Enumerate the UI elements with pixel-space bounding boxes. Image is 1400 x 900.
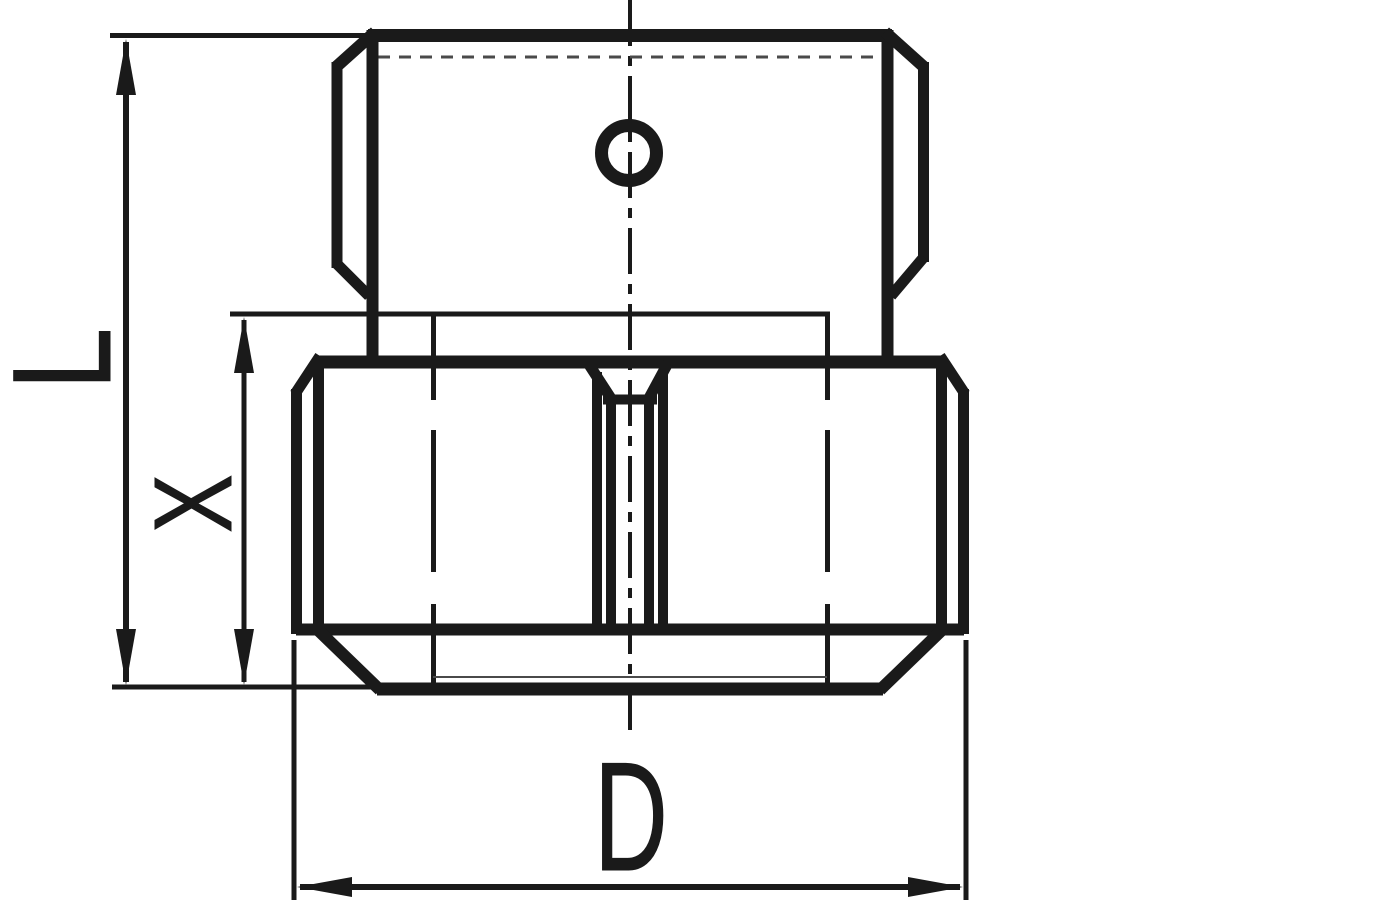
technical-drawing: L X D <box>0 0 1400 900</box>
dimension-L-arrow-up-icon <box>116 39 136 95</box>
dimension-D-arrow-left-icon <box>297 877 352 897</box>
dimension-D-arrow-right-icon <box>908 877 963 897</box>
upper-hex-chamfer-bottom-right <box>891 257 924 296</box>
lower-hex-chamfer-bottom-right <box>880 631 941 690</box>
dimension-L-label: L <box>0 328 140 390</box>
dimension-X-arrow-up-icon <box>234 317 254 373</box>
dimension-D: D <box>294 640 966 900</box>
dimension-D-label: D <box>594 730 668 900</box>
upper-hex-chamfer-bottom-left <box>336 263 369 296</box>
dimension-X-arrow-down-icon <box>234 629 254 685</box>
lower-hex-body <box>295 316 965 690</box>
drawing-canvas: L X D <box>0 0 1400 900</box>
dimension-X-label: X <box>133 474 256 533</box>
dimension-L-arrow-down-icon <box>116 629 136 685</box>
lower-hex-chamfer-bottom-left <box>319 631 380 690</box>
